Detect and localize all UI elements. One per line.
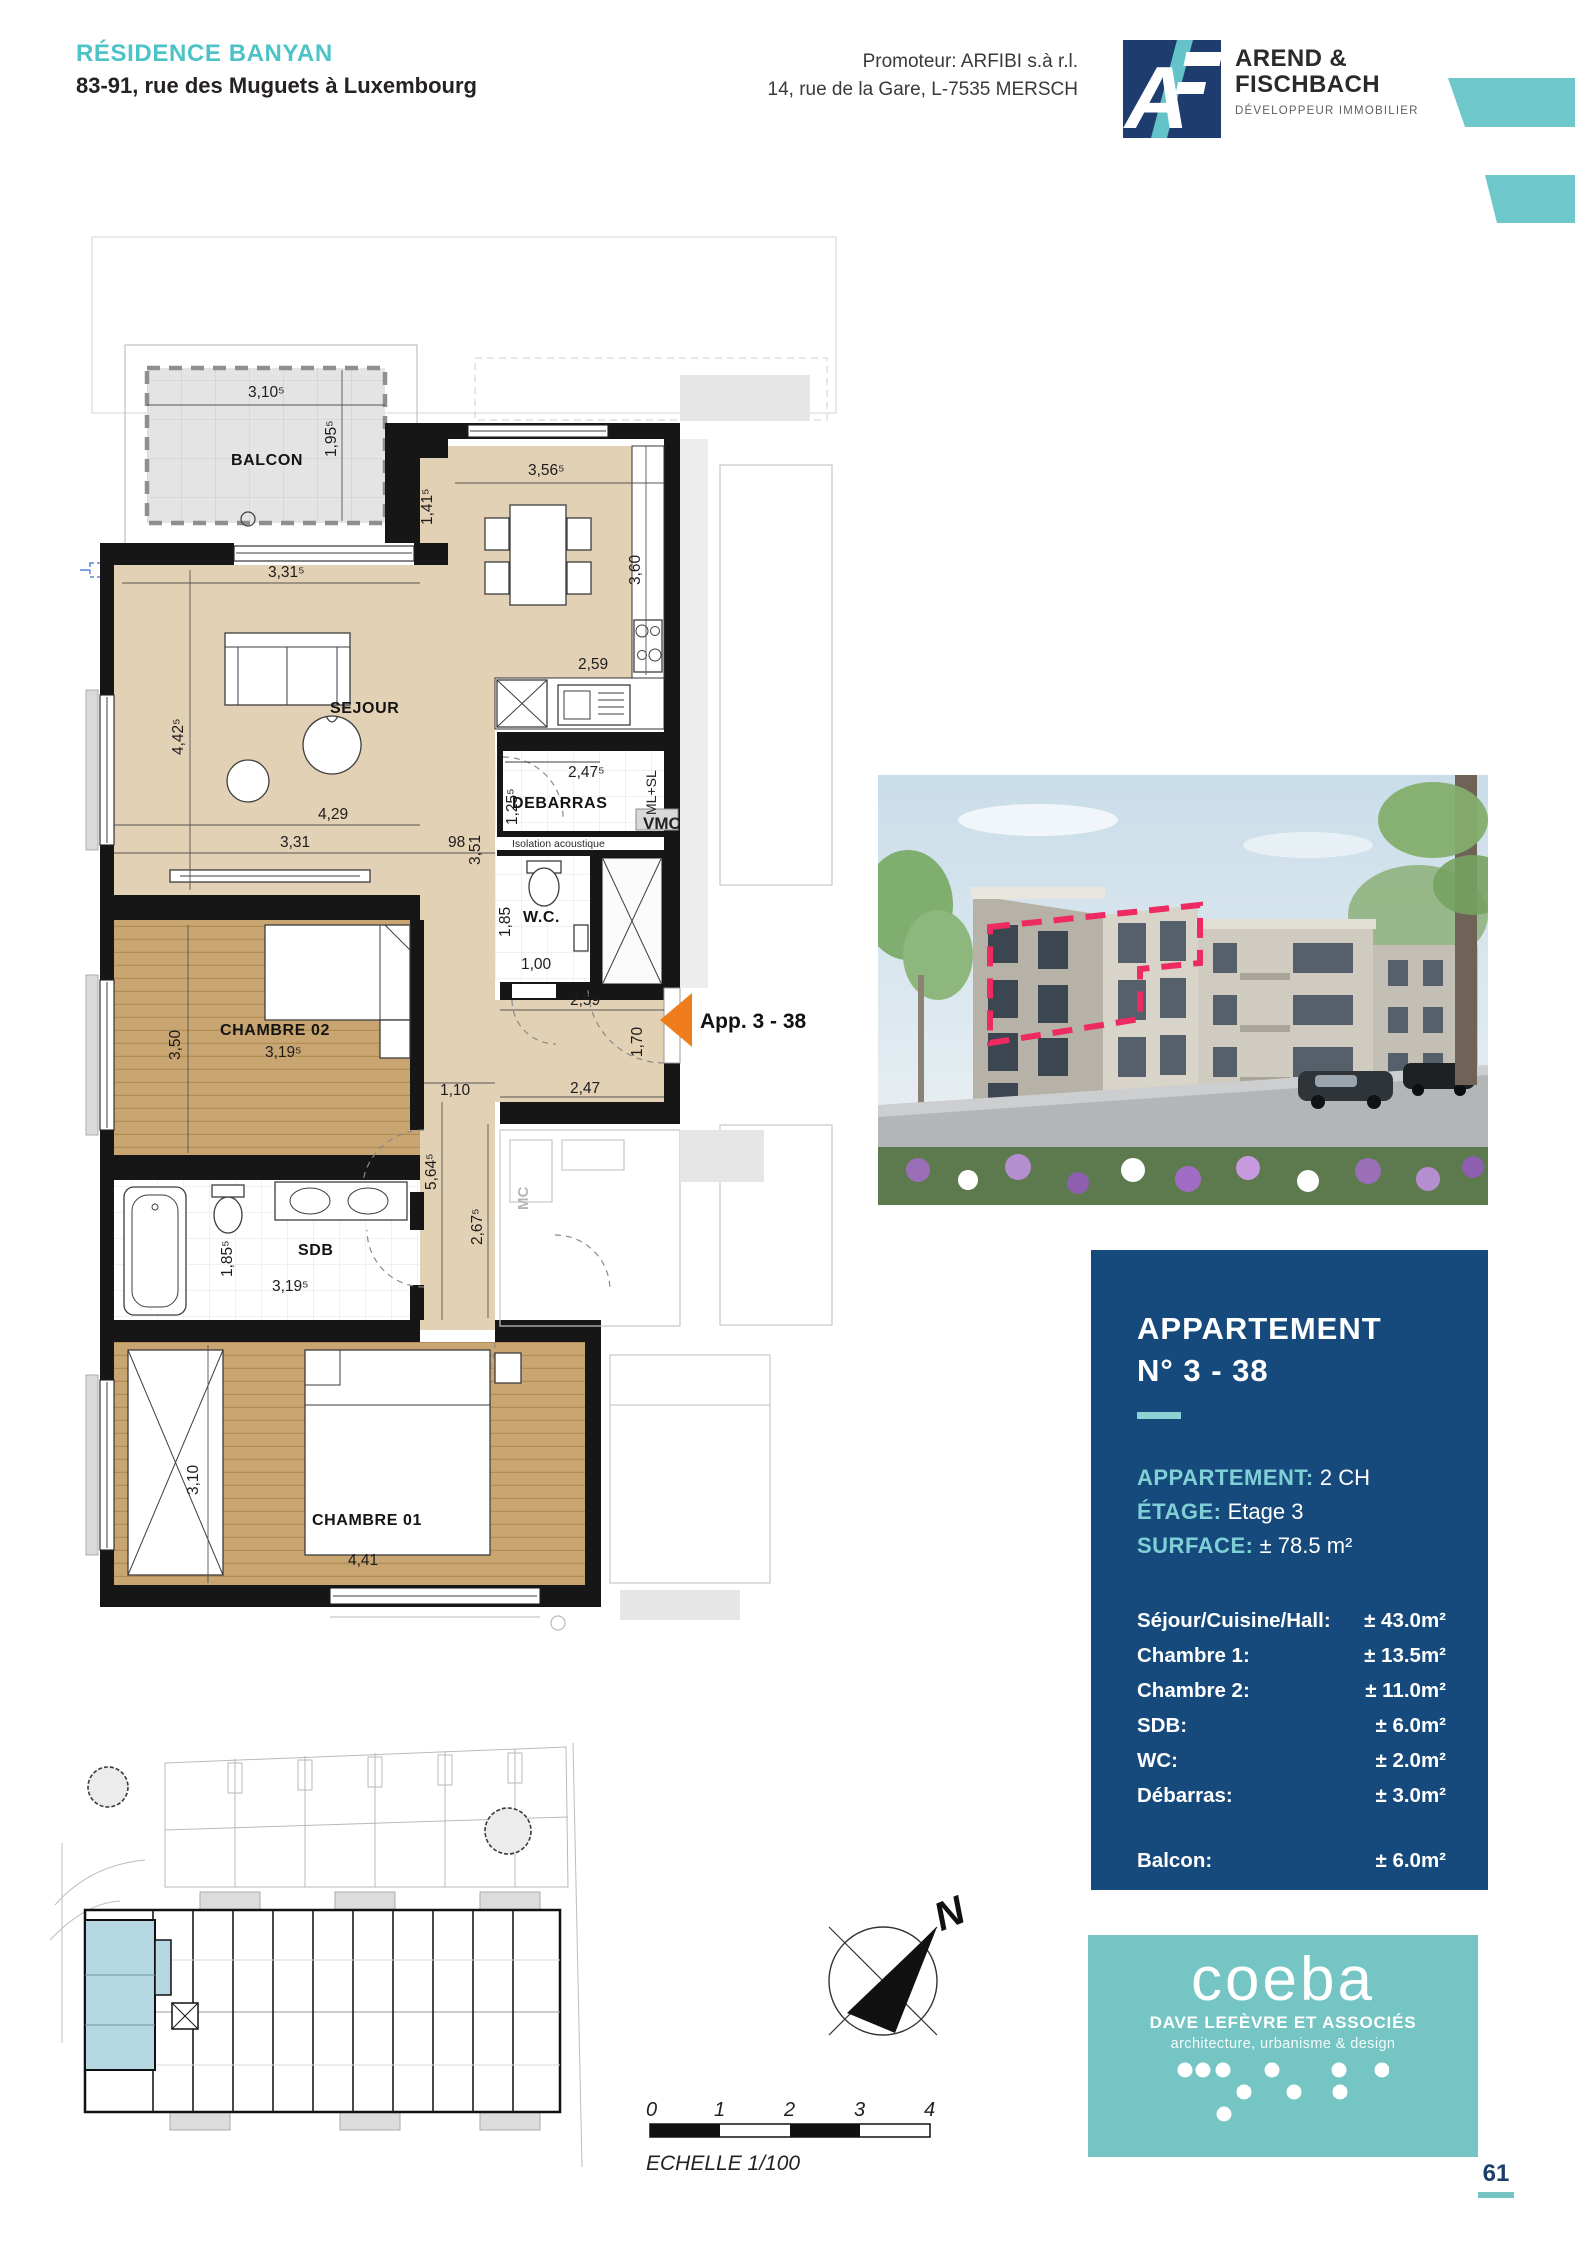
promoter-line1: Promoteur: ARFIBI s.à r.l.	[660, 48, 1078, 76]
dim-label: 3,60	[627, 554, 644, 585]
af-tagline: DÉVELOPPEUR IMMOBILIER	[1235, 105, 1419, 117]
promoter-line2: 14, rue de la Gare, L-7535 MERSCH	[660, 76, 1078, 104]
dim-label: 1,41⁵	[419, 488, 436, 525]
room-label-debarras: DEBARRAS	[512, 795, 607, 812]
dim-label: 3,10⁵	[248, 384, 285, 401]
spec-row: APPARTEMENT: 2 CH	[1137, 1461, 1446, 1495]
apartment-info-panel: APPARTEMENT N° 3 - 38 APPARTEMENT: 2 CH …	[1091, 1250, 1488, 1890]
af-logo-icon: A	[1123, 40, 1221, 138]
svg-text:A: A	[1123, 48, 1189, 138]
dim-label: 4,29	[318, 806, 348, 823]
panel-accent-dash	[1137, 1412, 1181, 1419]
spec-label: APPARTEMENT:	[1137, 1465, 1314, 1490]
wardrobe	[128, 1350, 223, 1575]
page-number-underline	[1478, 2192, 1514, 2198]
dim-label: 2,59	[578, 656, 608, 673]
mlsl-label: ML+SL	[643, 770, 659, 815]
spec-label: SURFACE:	[1137, 1533, 1253, 1558]
compass: N	[795, 1895, 970, 2070]
panel-title-line2: N° 3 - 38	[1137, 1350, 1446, 1392]
dim-label: 4,42⁵	[170, 718, 187, 755]
coeba-subtitle: DAVE LEFÈVRE ET ASSOCIÉS	[1088, 2013, 1478, 2033]
page-number: 61	[1466, 2160, 1526, 2188]
scale-bar: 0 1 2 3 4 ECHELLE 1/100	[640, 2100, 950, 2185]
room-label-sdb: SDB	[298, 1242, 334, 1259]
dim-label: 3,51	[467, 835, 484, 865]
dim-label: 2,59	[570, 992, 600, 1009]
room-area-row: Débarras: ± 3.0m²	[1137, 1778, 1446, 1813]
svg-text:2: 2	[783, 2100, 795, 2121]
isolation-label: Isolation acoustique	[512, 838, 605, 850]
svg-text:0: 0	[646, 2100, 657, 2121]
svg-text:4: 4	[924, 2100, 935, 2121]
room-area-row: SDB: ± 6.0m²	[1137, 1708, 1446, 1743]
dim-label: 3,50	[167, 1029, 184, 1060]
promoter-block: Promoteur: ARFIBI s.à r.l. 14, rue de la…	[660, 48, 1078, 104]
af-name-2: FISCHBACH	[1235, 72, 1419, 98]
dim-label: 2,47⁵	[568, 764, 605, 781]
dim-label: 3,19⁵	[265, 1044, 302, 1061]
dim-label: 1,85⁵	[219, 1240, 236, 1277]
room-label-balcon: BALCON	[231, 452, 303, 469]
svg-text:3: 3	[854, 2100, 865, 2121]
spec-value: 2 CH	[1320, 1465, 1370, 1490]
panel-title: APPARTEMENT N° 3 - 38	[1137, 1308, 1446, 1392]
room-label-sejour: SEJOUR	[330, 700, 399, 717]
room-label-chambre02: CHAMBRE 02	[220, 1022, 330, 1039]
project-address: 83-91, rue des Muguets à Luxembourg	[76, 73, 477, 99]
dim-label: 1,00	[521, 956, 552, 973]
dim-label: 1,85	[497, 907, 514, 937]
side-table	[227, 760, 269, 802]
room-area-row: WC: ± 2.0m²	[1137, 1743, 1446, 1778]
spec-row: SURFACE: ± 78.5 m²	[1137, 1529, 1446, 1563]
tree-icon	[485, 1808, 531, 1854]
project-name: RÉSIDENCE BANYAN	[76, 40, 477, 68]
dim-label: 5,64⁵	[423, 1153, 440, 1190]
scale-caption: ECHELLE 1/100	[646, 2152, 800, 2175]
af-name-1: AREND &	[1235, 46, 1419, 72]
neighbour-label: MC	[515, 1187, 532, 1210]
room-area-row: Chambre 2: ± 11.0m²	[1137, 1673, 1446, 1708]
brochure-page: RÉSIDENCE BANYAN 83-91, rue des Muguets …	[0, 0, 1575, 2260]
spec-value: Etage 3	[1228, 1499, 1304, 1524]
coeba-name: coeba	[1088, 1949, 1478, 2011]
building-photo	[878, 775, 1488, 1205]
site-plan	[50, 1735, 590, 2175]
svg-text:1: 1	[714, 2100, 725, 2121]
spec-label: ÉTAGE:	[1137, 1499, 1221, 1524]
panel-specs: APPARTEMENT: 2 CH ÉTAGE: Etage 3 SURFACE…	[1137, 1461, 1446, 1563]
header-accent-shapes	[1440, 70, 1575, 235]
technical-shaft	[600, 856, 664, 986]
room-label-wc: W.C.	[523, 909, 560, 926]
room-area-row: Séjour/Cuisine/Hall: ± 43.0m²	[1137, 1603, 1446, 1638]
af-logo-text: AREND & FISCHBACH DÉVELOPPEUR IMMOBILIER	[1235, 40, 1419, 138]
tree-icon	[88, 1767, 128, 1807]
panel-room-list: Séjour/Cuisine/Hall: ± 43.0m² Chambre 1:…	[1137, 1603, 1446, 1878]
floor-plan: App. 3 - 38	[80, 225, 860, 1675]
dim-label: 98	[448, 834, 465, 851]
dim-label: 3,56⁵	[528, 462, 565, 479]
architect-logo: coeba DAVE LEFÈVRE ET ASSOCIÉS architect…	[1088, 1935, 1478, 2157]
coeba-tagline: architecture, urbanisme & design	[1088, 2036, 1478, 2052]
developer-logo: A AREND & FISCHBACH DÉVELOPPEUR IMMOBILI…	[1123, 40, 1419, 138]
vmc-label: VMC	[643, 814, 681, 833]
dim-label: 1,95⁵	[323, 420, 340, 457]
page-number-block: 61	[1466, 2160, 1526, 2198]
dim-label: 1,70	[629, 1026, 646, 1057]
spec-row: ÉTAGE: Etage 3	[1137, 1495, 1446, 1529]
armchair	[303, 716, 361, 774]
room-area-row: Chambre 1: ± 13.5m²	[1137, 1638, 1446, 1673]
entrance-label: App. 3 - 38	[700, 1010, 807, 1033]
dim-label: 1,10	[440, 1082, 471, 1099]
header-project-block: RÉSIDENCE BANYAN 83-91, rue des Muguets …	[76, 40, 477, 99]
dim-label: 2,67⁵	[469, 1208, 486, 1245]
panel-title-line1: APPARTEMENT	[1137, 1308, 1446, 1350]
room-area-row-balcon: Balcon: ± 6.0m²	[1137, 1843, 1446, 1878]
dim-label: 3,31⁵	[268, 564, 305, 581]
dim-label: 3,31	[280, 834, 310, 851]
spec-value: ± 78.5 m²	[1260, 1533, 1353, 1558]
room-label-chambre01: CHAMBRE 01	[312, 1512, 422, 1529]
dim-label: 2,47	[570, 1080, 600, 1097]
dim-label: 4,41	[348, 1552, 378, 1569]
sofa	[225, 633, 350, 705]
coeba-braille-icon	[1177, 2060, 1389, 2122]
dim-label: 3,19⁵	[272, 1278, 309, 1295]
dim-label: 3,10	[185, 1464, 202, 1495]
